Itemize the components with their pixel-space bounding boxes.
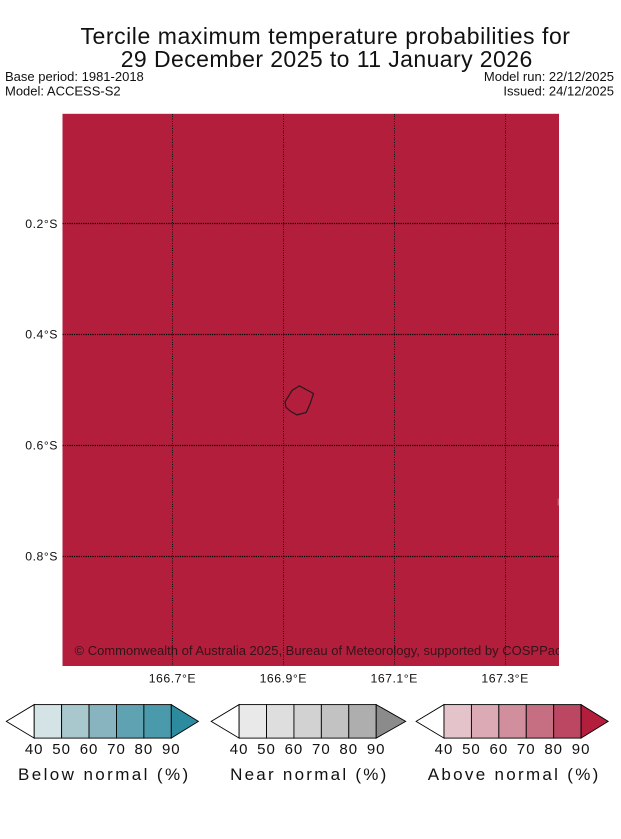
svg-text:0.6°S: 0.6°S — [25, 439, 58, 453]
svg-text:29 December 2025 to 11 January: 29 December 2025 to 11 January 2026 — [121, 46, 533, 72]
svg-text:Below normal (%): Below normal (%) — [18, 765, 191, 784]
svg-text:167.3°E: 167.3°E — [481, 672, 528, 686]
svg-text:50: 50 — [257, 741, 276, 758]
svg-text:0.8°S: 0.8°S — [25, 550, 58, 564]
svg-text:166.9°E: 166.9°E — [260, 672, 307, 686]
svg-text:50: 50 — [462, 741, 481, 758]
svg-text:80: 80 — [544, 741, 563, 758]
svg-text:80: 80 — [135, 741, 154, 758]
svg-text:70: 70 — [107, 741, 126, 758]
svg-text:70: 70 — [312, 741, 331, 758]
svg-text:167.1°E: 167.1°E — [370, 672, 417, 686]
svg-text:Model: ACCESS-S2: Model: ACCESS-S2 — [5, 84, 121, 99]
svg-text:60: 60 — [80, 741, 99, 758]
svg-text:© Commonwealth of Australia 20: © Commonwealth of Australia 2025, Bureau… — [75, 643, 562, 658]
svg-text:80: 80 — [339, 741, 358, 758]
svg-text:166.7°E: 166.7°E — [149, 672, 196, 686]
svg-text:Model run: 22/12/2025: Model run: 22/12/2025 — [484, 69, 614, 84]
svg-text:90: 90 — [367, 741, 386, 758]
svg-text:70: 70 — [517, 741, 536, 758]
svg-text:0.4°S: 0.4°S — [25, 328, 58, 342]
svg-text:90: 90 — [162, 741, 181, 758]
svg-text:40: 40 — [25, 741, 44, 758]
svg-text:90: 90 — [572, 741, 591, 758]
svg-text:Above normal (%): Above normal (%) — [428, 765, 601, 784]
svg-text:40: 40 — [230, 741, 249, 758]
svg-text:60: 60 — [489, 741, 508, 758]
svg-text:0.2°S: 0.2°S — [25, 217, 58, 231]
svg-text:Issued: 24/12/2025: Issued: 24/12/2025 — [503, 84, 614, 99]
svg-text:60: 60 — [285, 741, 304, 758]
svg-text:50: 50 — [52, 741, 71, 758]
svg-text:Base period: 1981-2018: Base period: 1981-2018 — [5, 69, 144, 84]
svg-text:Near normal (%): Near normal (%) — [230, 765, 388, 784]
svg-text:40: 40 — [435, 741, 454, 758]
